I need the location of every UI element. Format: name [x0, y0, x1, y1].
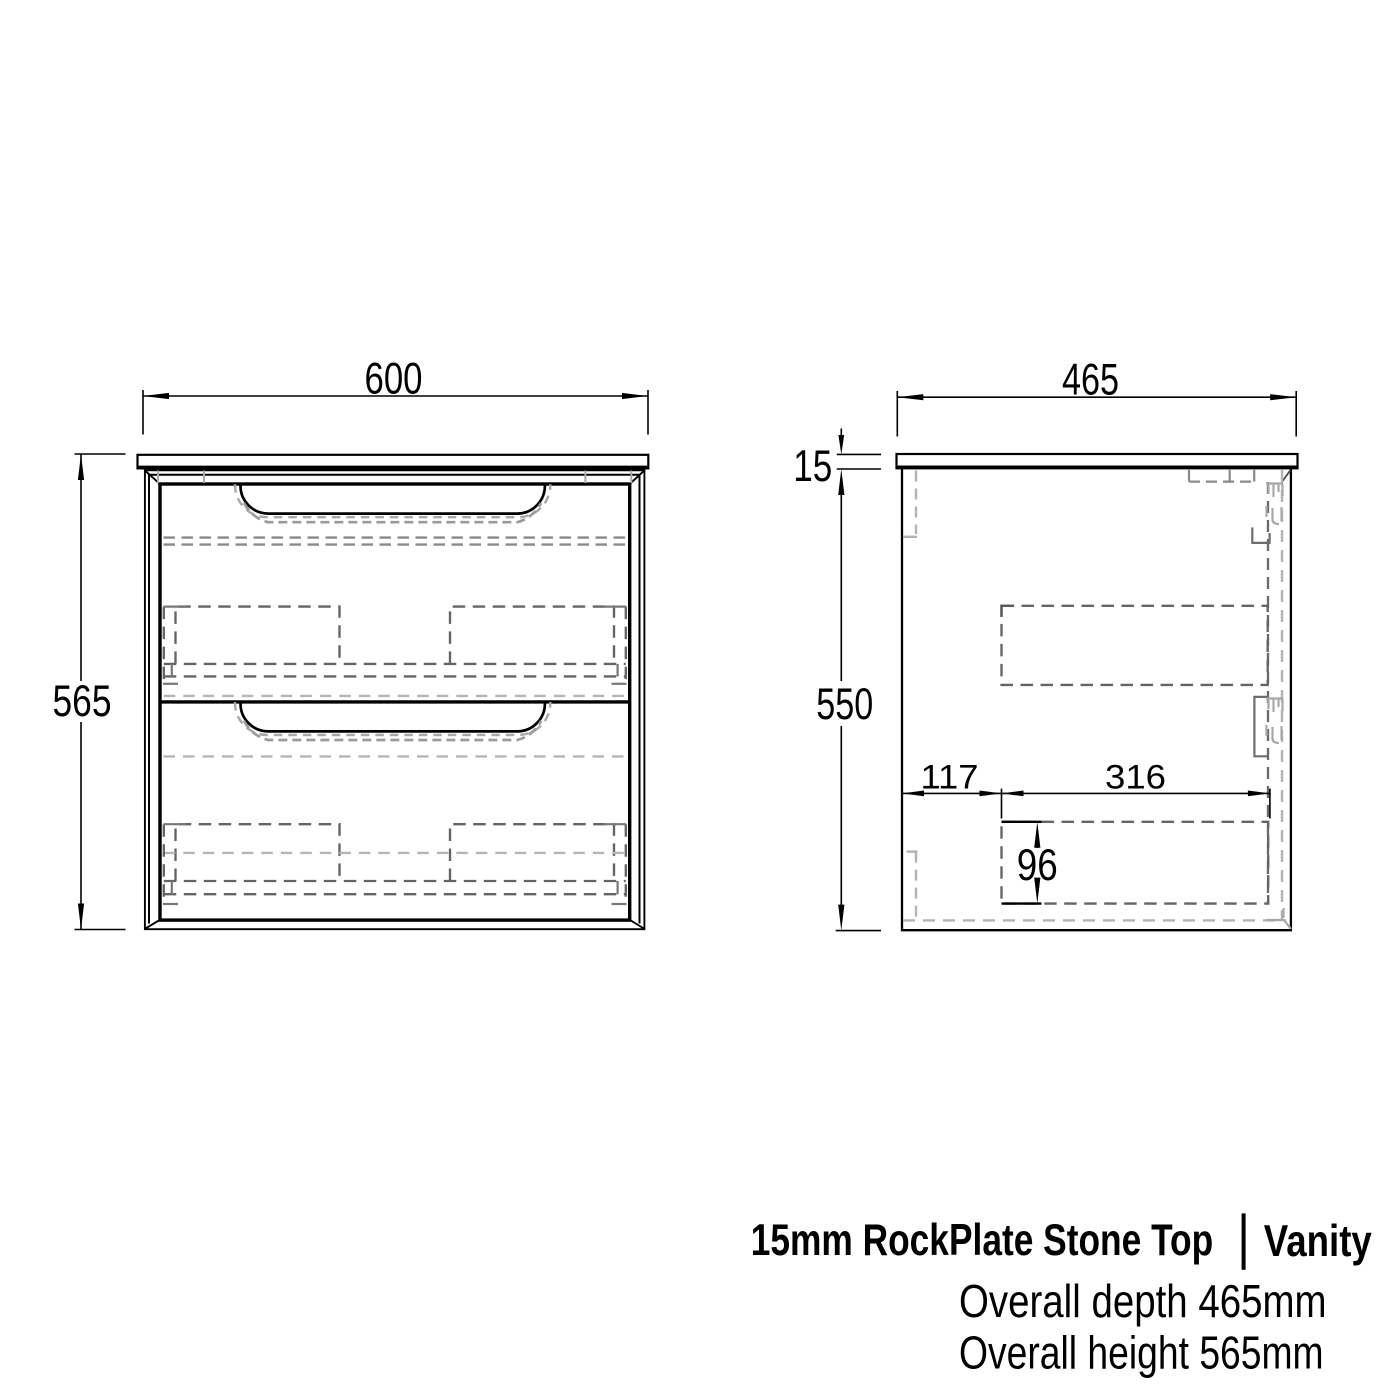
svg-text:316: 316	[1105, 759, 1166, 797]
svg-text:565: 565	[53, 677, 112, 726]
svg-text:15mm RockPlate Stone Top: 15mm RockPlate Stone Top	[751, 1216, 1213, 1265]
svg-text:550: 550	[816, 680, 873, 729]
svg-text:117: 117	[921, 759, 979, 797]
svg-text:96: 96	[1017, 841, 1058, 890]
svg-text:465: 465	[1062, 356, 1119, 405]
svg-text:600: 600	[365, 355, 423, 404]
svg-text:Overall height 565mm: Overall height 565mm	[959, 1327, 1324, 1379]
svg-text:15: 15	[793, 442, 832, 491]
svg-text:Overall depth 465mm: Overall depth 465mm	[959, 1275, 1327, 1327]
svg-text:Vanity: Vanity	[1264, 1217, 1372, 1266]
